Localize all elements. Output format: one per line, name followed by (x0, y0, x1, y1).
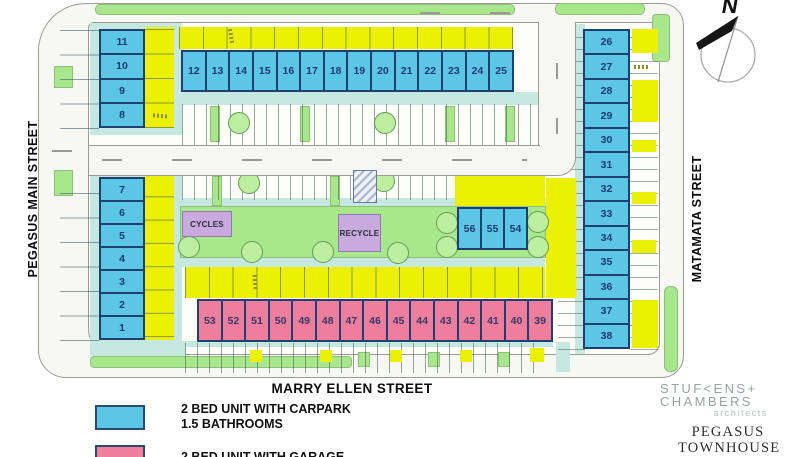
yellow-yard-strip (185, 267, 545, 298)
unit-49: 49 (291, 299, 317, 342)
project-title-line1: PEGASUS (678, 424, 778, 440)
unit-22: 22 (417, 50, 443, 92)
unit-43: 43 (433, 299, 459, 342)
unit-46: 46 (362, 299, 388, 342)
unit-12: 12 (181, 50, 207, 92)
street-label-pegasus-main: PEGASUS MAIN STREET (26, 104, 40, 294)
unit-block-right-col: 26272829303132333435363738 (583, 29, 630, 349)
unit-44: 44 (409, 299, 435, 342)
road-marking (52, 150, 86, 152)
unit-20: 20 (370, 50, 396, 92)
architect-logo: STUF<ENS+ CHAMBERS architects (660, 382, 768, 418)
tree (527, 236, 549, 258)
service-area-hatch (353, 170, 377, 203)
unit-55: 55 (480, 207, 505, 250)
tree (178, 236, 200, 258)
tree (387, 242, 409, 264)
legend: 2 BED UNIT WITH CARPARK1.5 BATHROOMS2 BE… (95, 402, 351, 457)
unit-17: 17 (299, 50, 325, 92)
driveway-lines (60, 177, 99, 341)
unit-52: 52 (221, 299, 247, 342)
unit-29: 29 (583, 102, 630, 128)
unit-3: 3 (99, 269, 145, 294)
unit-23: 23 (441, 50, 467, 92)
yellow-yard-strip (632, 80, 658, 122)
unit-7: 7 (99, 177, 145, 202)
yellow-patch (390, 350, 402, 362)
tree (436, 236, 458, 258)
grass-strip (664, 286, 678, 372)
unit-18: 18 (323, 50, 349, 92)
unit-6: 6 (99, 200, 145, 225)
tree (228, 112, 250, 134)
unit-21: 21 (394, 50, 420, 92)
project-title-line2: TOWNHOUSE (678, 440, 778, 456)
unit-block-left-top: 111098 (99, 29, 145, 128)
yellow-yard-strip (632, 29, 658, 53)
handwritten-note (634, 65, 650, 69)
walkway (90, 341, 186, 356)
legend-item: 2 BED UNIT WITH GARAGE (95, 445, 351, 457)
unit-37: 37 (583, 298, 630, 324)
recycle-label: RECYCLE (340, 229, 380, 238)
unit-block-garage-row: 535251504948474645444342414039 (197, 299, 553, 342)
unit-53: 53 (197, 299, 223, 342)
unit-51: 51 (244, 299, 270, 342)
unit-40: 40 (504, 299, 530, 342)
street-label-marry-ellen: MARRY ELLEN STREET (202, 381, 502, 396)
unit-56: 56 (457, 207, 482, 250)
unit-47: 47 (339, 299, 365, 342)
yellow-patch (530, 348, 544, 362)
unit-27: 27 (583, 53, 630, 79)
unit-30: 30 (583, 127, 630, 153)
yellow-patch (250, 350, 262, 362)
legend-swatch (95, 445, 145, 457)
unit-34: 34 (583, 225, 630, 251)
unit-15: 15 (252, 50, 278, 92)
compass-rose: N (688, 0, 768, 100)
tree (241, 241, 263, 263)
unit-50: 50 (268, 299, 294, 342)
unit-41: 41 (480, 299, 506, 342)
legend-label: 2 BED UNIT WITH GARAGE (181, 450, 344, 457)
unit-45: 45 (386, 299, 412, 342)
firm-name-line3: architects (660, 408, 768, 418)
unit-4: 4 (99, 246, 145, 271)
tree (312, 241, 334, 263)
unit-42: 42 (457, 299, 483, 342)
yellow-yard-strip (632, 300, 658, 348)
yard-divisions (145, 174, 174, 340)
legend-swatch (95, 405, 145, 430)
road-centerline (556, 38, 558, 134)
unit-28: 28 (583, 78, 630, 104)
road-centerline (102, 159, 527, 161)
unit-24: 24 (465, 50, 491, 92)
street-label-matamata: MATAMATA STREET (690, 134, 704, 304)
unit-11: 11 (99, 29, 145, 55)
yellow-patch (320, 350, 332, 362)
legend-label: 2 BED UNIT WITH CARPARK1.5 BATHROOMS (181, 402, 351, 432)
unit-10: 10 (99, 53, 145, 79)
tree (436, 212, 458, 234)
unit-31: 31 (583, 151, 630, 177)
unit-39: 39 (527, 299, 553, 342)
yellow-patch (460, 350, 472, 362)
unit-13: 13 (205, 50, 231, 92)
unit-8: 8 (99, 102, 145, 128)
parking-bays (185, 343, 545, 373)
unit-2: 2 (99, 292, 145, 317)
firm-name-line2: CHAMBERS (660, 395, 768, 408)
grass-strip (555, 3, 645, 15)
yellow-yard-strip (632, 192, 656, 204)
unit-block-left-bottom: 7654321 (99, 177, 145, 340)
unit-14: 14 (228, 50, 254, 92)
cycles-label: CYCLES (190, 220, 224, 229)
unit-36: 36 (583, 274, 630, 300)
project-title: PEGASUS TOWNHOUSE (678, 424, 778, 456)
yard-divisions (185, 267, 545, 298)
unit-38: 38 (583, 323, 630, 349)
yellow-yard-strip (145, 27, 174, 128)
yellow-yard-strip (546, 178, 576, 298)
legend-item: 2 BED UNIT WITH CARPARK1.5 BATHROOMS (95, 402, 351, 432)
site-plan: CYCLES RECYCLE 111098 7654321 1213141516… (0, 0, 800, 457)
unit-26: 26 (583, 29, 630, 55)
unit-35: 35 (583, 249, 630, 275)
unit-block-top-row: 1213141516171819202122232425 (181, 50, 514, 92)
unit-16: 16 (276, 50, 302, 92)
unit-19: 19 (346, 50, 372, 92)
unit-48: 48 (315, 299, 341, 342)
yellow-yard-strip (632, 140, 656, 152)
yellow-yard-strip (455, 176, 545, 206)
unit-25: 25 (488, 50, 514, 92)
unit-block-center: 565554 (457, 207, 528, 250)
unit-5: 5 (99, 223, 145, 248)
tree (374, 112, 396, 134)
unit-54: 54 (503, 207, 528, 250)
unit-1: 1 (99, 315, 145, 340)
yellow-yard-strip (632, 240, 656, 253)
cycles-store: CYCLES (182, 211, 232, 237)
road-centerline (420, 12, 540, 14)
unit-33: 33 (583, 200, 630, 226)
recycle-store: RECYCLE (338, 214, 381, 252)
driveway-lines (60, 29, 99, 129)
tree (527, 211, 549, 233)
yellow-yard-strip (145, 174, 174, 340)
unit-32: 32 (583, 176, 630, 202)
yard-divisions (145, 27, 174, 128)
unit-9: 9 (99, 78, 145, 104)
